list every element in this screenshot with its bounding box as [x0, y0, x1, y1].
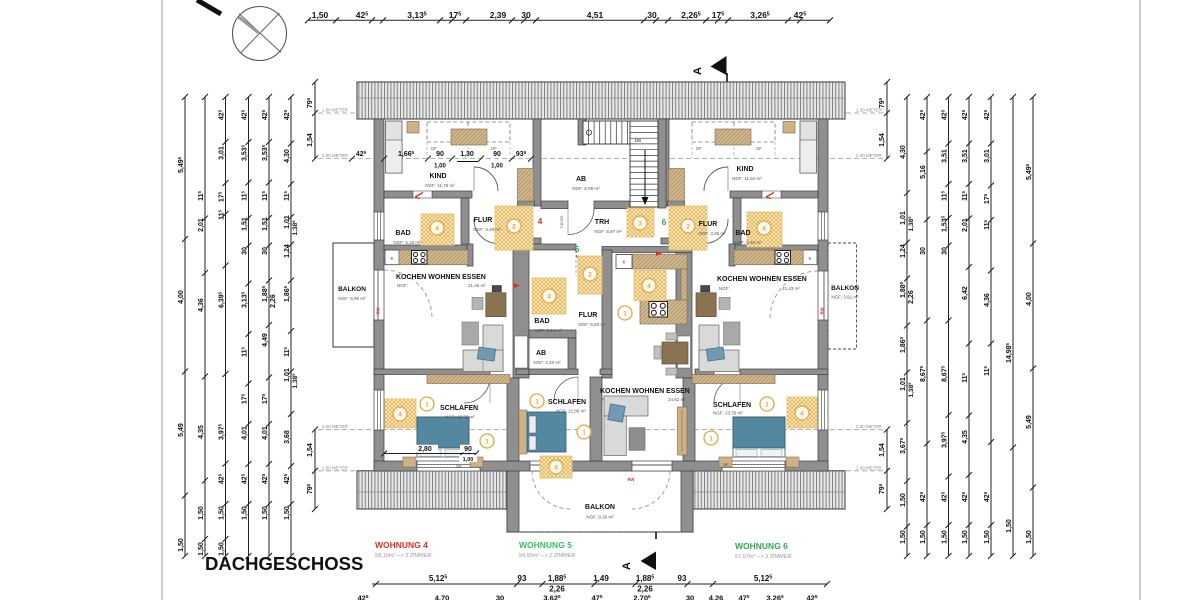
svg-text:BALKON: BALKON [831, 285, 859, 292]
svg-text:1.00 METER: 1.00 METER [322, 465, 349, 470]
svg-text:1,49: 1,49 [593, 574, 609, 583]
svg-text:30: 30 [496, 594, 504, 600]
svg-text:2,80: 2,80 [418, 446, 432, 453]
svg-text:24,62 m²: 24,62 m² [668, 397, 686, 402]
svg-text:SCHLAFEN: SCHLAFEN [713, 402, 751, 409]
svg-text:1: 1 [709, 435, 713, 442]
svg-text:2,26: 2,26 [549, 585, 565, 594]
svg-text:2,705: 2,705 [633, 594, 651, 600]
svg-text:4,30: 4,30 [900, 145, 907, 159]
svg-text:1,50: 1,50 [219, 506, 226, 520]
svg-text:3,51: 3,51 [942, 149, 949, 163]
svg-text:1,50: 1,50 [284, 506, 291, 520]
svg-text:30: 30 [262, 247, 269, 255]
svg-text:NGF: 6,97 m²: NGF: 6,97 m² [594, 229, 622, 234]
svg-text:TRH: TRH [595, 219, 609, 226]
svg-text:4: 4 [800, 410, 804, 417]
svg-text:1: 1 [623, 310, 627, 317]
svg-text:3,68: 3,68 [284, 430, 291, 444]
svg-text:1,50: 1,50 [242, 506, 249, 520]
svg-text:AB: AB [536, 350, 546, 357]
svg-text:KOCHEN WOHNEN ESSEN: KOCHEN WOHNEN ESSEN [717, 276, 807, 283]
svg-text:6: 6 [662, 217, 667, 227]
svg-text:1,50: 1,50 [262, 506, 269, 520]
svg-text:NGF: 5,90 m²: NGF: 5,90 m² [338, 296, 366, 301]
svg-text:425: 425 [807, 594, 818, 600]
svg-text:RW: RW [628, 477, 635, 482]
svg-text:2: 2 [686, 223, 690, 230]
svg-text:NGF: 2,40 m²: NGF: 2,40 m² [533, 360, 561, 365]
svg-text:T30 RS: T30 RS [560, 215, 564, 228]
svg-text:1,30: 1,30 [460, 151, 474, 158]
svg-text:RW: RW [376, 308, 381, 315]
svg-text:1,54: 1,54 [879, 443, 886, 457]
svg-text:A: A [692, 67, 704, 75]
svg-text:1: 1 [582, 429, 586, 436]
svg-text:4,35: 4,35 [962, 430, 969, 444]
svg-text:DF: DF [456, 464, 462, 469]
svg-text:1,00: 1,00 [491, 164, 503, 170]
svg-text:4: 4 [398, 411, 402, 418]
svg-text:1,50: 1,50 [920, 530, 927, 544]
svg-text:4,70: 4,70 [435, 594, 450, 600]
svg-text:1,50: 1,50 [312, 10, 329, 20]
svg-text:BAD: BAD [735, 230, 750, 237]
svg-text:DF: DF [756, 146, 762, 151]
svg-text:4: 4 [547, 293, 551, 300]
svg-text:RW: RW [820, 308, 825, 315]
svg-text:3,265: 3,265 [766, 594, 784, 600]
svg-text:4,35: 4,35 [198, 425, 205, 439]
svg-text:54,95m² --> 2 ZIMMER: 54,95m² --> 2 ZIMMER [519, 553, 575, 559]
svg-text:3,51: 3,51 [962, 149, 969, 163]
svg-text:425: 425 [358, 594, 369, 600]
svg-text:4,36: 4,36 [198, 298, 205, 312]
svg-text:3: 3 [638, 220, 642, 227]
svg-text:93: 93 [678, 574, 687, 583]
svg-text:2: 2 [512, 223, 516, 230]
svg-text:1,50: 1,50 [942, 530, 949, 544]
svg-text:1: 1 [425, 401, 429, 408]
svg-text:58,10m² --> 3 ZIMMER: 58,10m² --> 3 ZIMMER [375, 553, 431, 559]
svg-text:1: 1 [535, 398, 539, 405]
svg-text:A: A [621, 562, 633, 570]
svg-text:3,01: 3,01 [219, 146, 226, 160]
svg-text:NGF:: NGF: [397, 283, 408, 288]
svg-text:4,01: 4,01 [262, 426, 269, 440]
svg-text:NGF: 6,99 m²: NGF: 6,99 m² [572, 186, 600, 191]
svg-text:30: 30 [242, 247, 249, 255]
svg-text:1,50: 1,50 [198, 542, 205, 556]
svg-text:NGF: 13,76 m²: NGF: 13,76 m² [445, 415, 475, 420]
svg-text:KIND: KIND [736, 166, 753, 173]
svg-text:90: 90 [464, 446, 472, 453]
svg-text:5,49: 5,49 [178, 423, 185, 437]
svg-text:WOHNUNG 4: WOHNUNG 4 [375, 540, 428, 550]
svg-text:2,26: 2,26 [908, 290, 915, 304]
svg-text:K: K [808, 256, 811, 261]
svg-text:KOCHEN WOHNEN ESSEN: KOCHEN WOHNEN ESSEN [396, 274, 486, 281]
svg-text:30: 30 [647, 10, 657, 20]
svg-text:4,00: 4,00 [178, 290, 185, 304]
svg-text:21,46 m²: 21,46 m² [468, 283, 486, 288]
svg-text:NGF: 9,30 m²: NGF: 9,30 m² [586, 515, 614, 520]
svg-text:4,30: 4,30 [284, 149, 291, 163]
svg-text:2,26: 2,26 [637, 585, 653, 594]
svg-text:4,00: 4,00 [1026, 292, 1033, 306]
svg-text:2,26: 2,26 [270, 294, 277, 308]
svg-text:1,50: 1,50 [1006, 519, 1013, 533]
svg-text:KOCHEN WOHNEN ESSEN: KOCHEN WOHNEN ESSEN [600, 388, 690, 395]
svg-text:3,625: 3,625 [543, 594, 561, 600]
svg-text:1,50: 1,50 [962, 530, 969, 544]
svg-text:1.00 METER: 1.00 METER [856, 465, 883, 470]
svg-text:30: 30 [521, 10, 531, 20]
svg-text:1,54: 1,54 [307, 443, 314, 457]
svg-text:NGF: 13,76 m²: NGF: 13,76 m² [713, 411, 743, 416]
svg-text:475: 475 [739, 594, 750, 600]
svg-text:FLUR: FLUR [699, 221, 718, 228]
svg-text:BALKON: BALKON [585, 504, 615, 511]
svg-text:21,43 m²: 21,43 m² [782, 286, 800, 291]
svg-text:NGF: 11,76 m²: NGF: 11,76 m² [425, 183, 455, 188]
svg-text:AB: AB [576, 176, 586, 183]
svg-text:1,50: 1,50 [900, 493, 907, 507]
svg-text:NGF: 6,40 m²: NGF: 6,40 m² [734, 240, 762, 245]
svg-text:1: 1 [765, 401, 769, 408]
svg-text:K: K [622, 260, 625, 265]
svg-text:WOHNUNG 5: WOHNUNG 5 [519, 540, 572, 550]
svg-text:1,50: 1,50 [1026, 530, 1033, 544]
svg-text:1,50: 1,50 [984, 530, 991, 544]
svg-text:2.00 METER: 2.00 METER [856, 424, 883, 429]
svg-text:3,01: 3,01 [984, 149, 991, 163]
svg-text:K: K [390, 256, 393, 261]
svg-text:4: 4 [647, 283, 651, 290]
svg-text:NGF: 6,80 m²: NGF: 6,80 m² [578, 322, 606, 327]
svg-text:NGF: 3,49 m²: NGF: 3,49 m² [473, 227, 501, 232]
svg-text:93: 93 [518, 574, 527, 583]
svg-text:1,50: 1,50 [198, 506, 205, 520]
svg-text:FLUR: FLUR [579, 312, 598, 319]
svg-text:1: 1 [485, 438, 489, 445]
svg-text:1.00 METER: 1.00 METER [322, 108, 349, 113]
svg-text:FLUR: FLUR [474, 217, 493, 224]
svg-text:DB: DB [635, 138, 641, 143]
svg-text:1,50: 1,50 [178, 538, 185, 552]
svg-text:NGF: 3,91 m²: NGF: 3,91 m² [831, 295, 859, 300]
svg-text:1,54: 1,54 [307, 133, 314, 147]
svg-text:2.00 METER: 2.00 METER [322, 424, 349, 429]
svg-text:6,42: 6,42 [962, 286, 969, 300]
svg-text:NGF: 3,36 m²: NGF: 3,36 m² [698, 231, 726, 236]
svg-text:4: 4 [435, 225, 439, 232]
svg-text:1,00: 1,00 [463, 457, 474, 463]
svg-text:30: 30 [920, 247, 927, 255]
svg-text:5,16: 5,16 [920, 165, 927, 179]
svg-text:1,50: 1,50 [900, 530, 907, 544]
svg-text:475: 475 [592, 594, 603, 600]
svg-text:NGF: 6,15 m²: NGF: 6,15 m² [393, 240, 421, 245]
svg-text:30: 30 [942, 247, 949, 255]
svg-text:5: 5 [575, 244, 580, 254]
svg-text:4: 4 [538, 216, 543, 226]
svg-text:1,00: 1,00 [434, 164, 446, 170]
svg-text:90: 90 [436, 151, 444, 158]
svg-text:BAD: BAD [395, 230, 410, 237]
svg-text:NGF: 11,64 m²: NGF: 11,64 m² [732, 176, 762, 181]
svg-text:90: 90 [493, 151, 501, 158]
svg-text:4,51: 4,51 [587, 10, 604, 20]
svg-text:NGF:: NGF: [719, 286, 730, 291]
svg-text:2,39: 2,39 [490, 10, 507, 20]
svg-text:4,49: 4,49 [262, 333, 269, 347]
svg-text:4: 4 [762, 225, 766, 232]
svg-text:DF: DF [696, 146, 702, 151]
svg-text:BAD: BAD [534, 318, 549, 325]
svg-text:4: 4 [554, 464, 558, 471]
svg-text:1,54: 1,54 [879, 133, 886, 147]
svg-text:30: 30 [686, 594, 694, 600]
svg-text:WOHNUNG 6: WOHNUNG 6 [735, 541, 788, 551]
svg-text:2.00 METER: 2.00 METER [322, 153, 349, 158]
svg-text:2.00 METER: 2.00 METER [856, 153, 883, 158]
svg-text:57,57m² --> 3 ZIMMER: 57,57m² --> 3 ZIMMER [735, 554, 791, 560]
svg-text:SCHLAFEN: SCHLAFEN [548, 399, 586, 406]
svg-text:DACHGESCHOSS: DACHGESCHOSS [205, 553, 363, 574]
svg-text:DF: DF [723, 462, 729, 467]
svg-text:SCHLAFEN: SCHLAFEN [440, 405, 478, 412]
svg-text:KIND: KIND [429, 173, 446, 180]
svg-text:4,26: 4,26 [709, 594, 724, 600]
svg-text:14,985: 14,985 [1005, 342, 1013, 363]
svg-text:5,49: 5,49 [1026, 415, 1033, 429]
svg-text:BALKON: BALKON [338, 286, 366, 293]
svg-text:2: 2 [588, 271, 592, 278]
svg-text:NGF: 6,14 m²: NGF: 6,14 m² [534, 328, 562, 333]
svg-text:1,24: 1,24 [900, 244, 907, 258]
svg-text:4,01: 4,01 [242, 426, 249, 440]
svg-text:4,36: 4,36 [984, 293, 991, 307]
